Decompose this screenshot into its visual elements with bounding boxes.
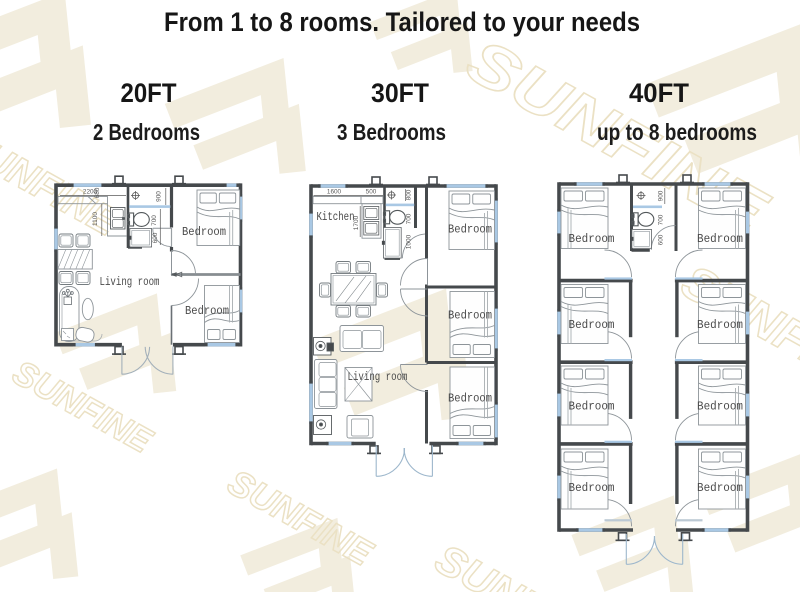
svg-text:2 Bedrooms: 2 Bedrooms (93, 119, 200, 145)
svg-text:Bedroom: Bedroom (697, 319, 743, 332)
svg-text:40FT: 40FT (629, 78, 689, 108)
svg-text:700: 700 (406, 213, 413, 224)
svg-text:1700: 1700 (353, 215, 360, 230)
svg-text:Bedroom: Bedroom (697, 482, 743, 495)
svg-text:Bedroom: Bedroom (448, 393, 492, 406)
svg-text:900: 900 (155, 191, 162, 202)
svg-text:Bedroom: Bedroom (448, 310, 492, 323)
svg-text:700: 700 (151, 215, 158, 226)
svg-text:1000: 1000 (406, 234, 413, 249)
svg-text:Kitchen: Kitchen (317, 211, 355, 224)
svg-text:Bedroom: Bedroom (448, 224, 492, 237)
svg-text:Living room: Living room (100, 276, 160, 289)
svg-text:Bedroom: Bedroom (569, 233, 615, 246)
svg-text:1600: 1600 (327, 189, 342, 196)
svg-text:30FT: 30FT (371, 78, 429, 108)
svg-text:600: 600 (152, 232, 159, 243)
svg-text:up to 8 bedrooms: up to 8 bedrooms (597, 119, 757, 145)
svg-text:3 Bedrooms: 3 Bedrooms (337, 119, 446, 145)
svg-text:500: 500 (366, 189, 377, 196)
svg-text:900: 900 (658, 190, 665, 201)
svg-text:Living room: Living room (348, 371, 408, 384)
svg-text:700: 700 (658, 214, 665, 225)
svg-text:From 1 to 8 rooms. Tailored to: From 1 to 8 rooms. Tailored to your need… (164, 7, 640, 37)
svg-text:Bedroom: Bedroom (182, 226, 226, 239)
svg-text:Bedroom: Bedroom (185, 305, 229, 318)
svg-text:680: 680 (94, 187, 101, 198)
svg-text:Bedroom: Bedroom (569, 319, 615, 332)
svg-text:800: 800 (406, 189, 413, 200)
svg-text:600: 600 (658, 234, 665, 245)
svg-text:20FT: 20FT (121, 78, 177, 108)
svg-text:Bedroom: Bedroom (569, 401, 615, 414)
svg-text:Bedroom: Bedroom (697, 401, 743, 414)
svg-text:Bedroom: Bedroom (697, 233, 743, 246)
svg-text:1100: 1100 (92, 212, 99, 226)
svg-text:Bedroom: Bedroom (569, 482, 615, 495)
